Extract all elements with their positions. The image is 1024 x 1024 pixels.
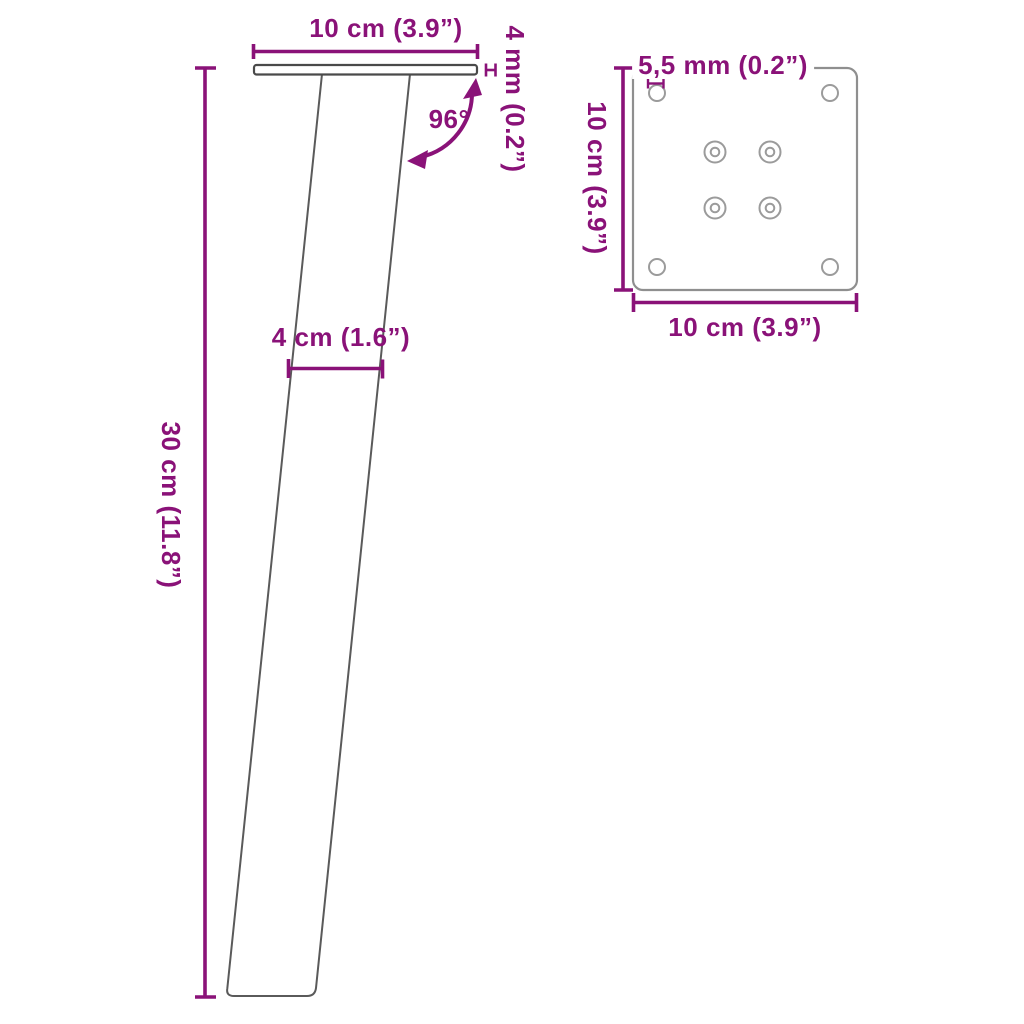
screw-hole-inner bbox=[711, 204, 720, 213]
diagram-canvas: 10 cm (3.9”) 4 mm (0.2”) 96° 4 cm (1.6”)… bbox=[0, 0, 1024, 1024]
leg-width-label: 4 cm (1.6”) bbox=[272, 324, 410, 350]
mounting-plate-outline bbox=[633, 68, 857, 290]
plate-height-label: 10 cm (3.9”) bbox=[584, 101, 610, 254]
thickness-marker-bracket bbox=[486, 64, 496, 77]
plate-width-label: 10 cm (3.9”) bbox=[668, 314, 821, 340]
corner-hole-top-right bbox=[822, 85, 838, 101]
corner-hole-bottom-left bbox=[649, 259, 665, 275]
dimension-top-width bbox=[254, 44, 478, 59]
hole-diameter-label: 5,5 mm (0.2”) bbox=[632, 51, 814, 79]
leg-body-shape bbox=[227, 74, 410, 996]
leg-side-view bbox=[227, 65, 477, 996]
mounting-plate-side-view bbox=[254, 65, 477, 75]
angle-arrowhead-top-icon bbox=[463, 78, 482, 99]
dimension-height bbox=[195, 68, 216, 997]
dimension-plate-width bbox=[634, 293, 857, 312]
top-width-label: 10 cm (3.9”) bbox=[309, 15, 462, 41]
angle-label: 96° bbox=[429, 106, 470, 132]
corner-hole-bottom-right bbox=[822, 259, 838, 275]
plate-top-view bbox=[633, 68, 857, 290]
dimension-plate-height bbox=[614, 68, 633, 290]
angle-arrowhead-bottom-icon bbox=[407, 150, 428, 169]
screw-hole-inner bbox=[766, 148, 775, 157]
thickness-label: 4 mm (0.2”) bbox=[502, 25, 528, 172]
screw-hole-inner bbox=[711, 148, 720, 157]
height-label: 30 cm (11.8”) bbox=[158, 422, 184, 589]
screw-hole-inner bbox=[766, 204, 775, 213]
